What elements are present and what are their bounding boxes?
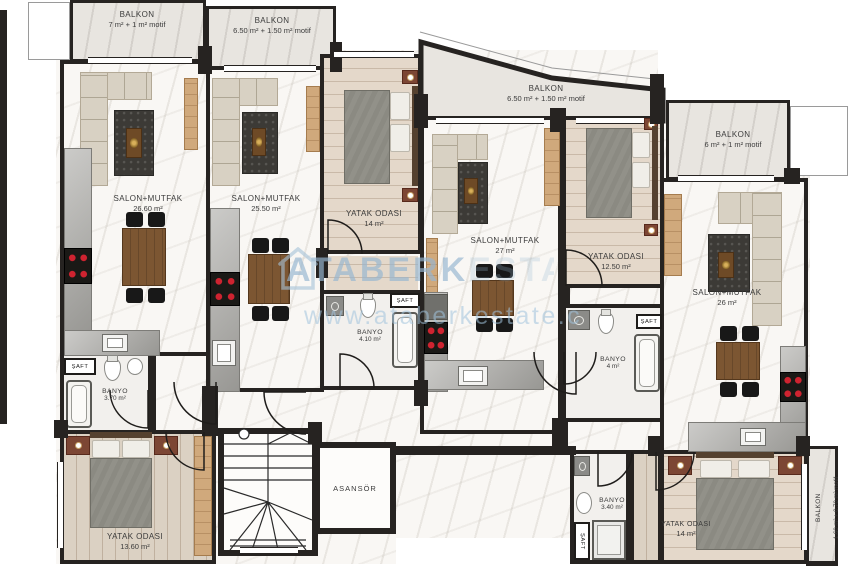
wall-pillar [552,418,568,446]
shaft-label-3: ŞAFT [636,314,662,329]
window [436,117,544,124]
label-balcony-5: BALKON 1.60 m² + 0.70 m² motif [810,456,834,560]
window [678,175,774,182]
elevator: ASANSÖR [314,442,396,534]
window [334,51,414,58]
dining-table [248,254,290,304]
shaft-label-1: ŞAFT [64,358,96,375]
window [240,547,298,554]
chair [272,306,289,321]
chair [742,382,759,397]
kitchen-counter [64,148,92,334]
wall-pillar [796,436,810,456]
pillow [390,92,410,120]
wardrobe [194,436,212,556]
nightstand [668,456,692,475]
nightstand [402,188,418,202]
wall-pillar [784,168,800,184]
wall-pillar [550,108,566,132]
wardrobe [544,128,560,206]
corridor-wall [392,446,576,455]
bed-headboard [696,452,774,458]
bathroom-sink [576,492,592,514]
motif-outline [790,106,848,176]
exterior-patch [396,538,570,566]
pillow [738,460,770,478]
window [224,65,316,72]
stove [780,372,806,402]
sofa [752,192,782,326]
floor-plan: ASANSÖR ŞAFT ŞAFT [0,0,850,566]
bed [586,128,632,218]
wall-pillar [316,248,328,278]
nightstand [778,456,802,475]
wall-pillar [558,284,570,308]
dining-table [472,280,514,316]
shaft-label-4: ŞAFT [574,522,590,560]
bed [90,458,152,528]
chair [742,326,759,341]
stove [424,322,448,354]
tv-unit [306,86,320,152]
pillow [390,124,410,152]
sofa [432,134,458,234]
nightstand [402,70,418,84]
chair [126,288,143,303]
hall-2 [326,256,418,290]
elevator-label: ASANSÖR [333,484,377,493]
chair [148,288,165,303]
chair [252,238,269,253]
balcony-3 [418,28,666,124]
coffee-table [252,128,266,156]
bathtub [66,380,92,428]
bathtub [634,334,660,392]
chair [476,264,493,278]
wall-pillar [648,436,664,456]
balcony-1 [70,0,206,64]
kitchen-sink [740,428,766,446]
window [88,57,192,64]
stove [64,248,92,284]
bed-headboard [652,126,658,220]
pillow [700,460,732,478]
coffee-table [126,128,142,158]
bathroom-sink [127,358,143,375]
pillow [122,440,150,458]
motif-outline [28,2,70,60]
dining-table [122,228,166,286]
bed-headboard [90,432,152,438]
wall-pillar [202,386,218,436]
washing-machine [326,296,344,316]
bed [344,90,390,184]
stove [210,272,240,306]
sofa [212,78,240,186]
site-boundary-wall [0,10,7,424]
chair [476,318,493,332]
cabinet [426,238,438,298]
dining-table [716,342,760,380]
kitchen-sink [212,340,236,366]
shower [592,520,626,560]
chair [720,382,737,397]
pillow [632,162,650,188]
room-area: 1.60 m² + 0.70 m² motif [834,476,840,538]
kitchen-sink [102,334,128,352]
nightstand [66,436,90,455]
wall-pillar [54,420,68,438]
wall-pillar [414,94,428,128]
pillow [92,440,120,458]
hall-4 [630,450,662,564]
pillow [632,132,650,158]
kitchen-sink [458,366,488,386]
chair [496,264,513,278]
chair [272,238,289,253]
staircase [218,428,318,556]
wardrobe [664,194,682,276]
chair [252,306,269,321]
chair [148,212,165,227]
wall-pillar [198,46,212,74]
wall-pillar [650,74,664,124]
bathroom-counter [574,456,590,476]
balcony-4 [666,100,790,182]
shaft-label-2: ŞAFT [390,293,420,308]
wall-pillar [414,380,428,406]
window [801,464,808,550]
room-name: BALKON [815,494,822,523]
bathroom-counter [568,310,590,330]
nightstand [644,224,658,236]
bathtub [392,312,418,368]
coffee-table [464,178,478,204]
chair [496,318,513,332]
window [57,462,64,548]
wall-pillar [308,422,322,444]
coffee-table [718,252,734,278]
window [576,117,644,124]
chair [126,212,143,227]
bed [696,478,774,550]
fridge [424,294,448,320]
tv-unit [184,78,198,150]
chair [720,326,737,341]
nightstand [154,436,178,455]
balcony-2 [206,6,336,72]
